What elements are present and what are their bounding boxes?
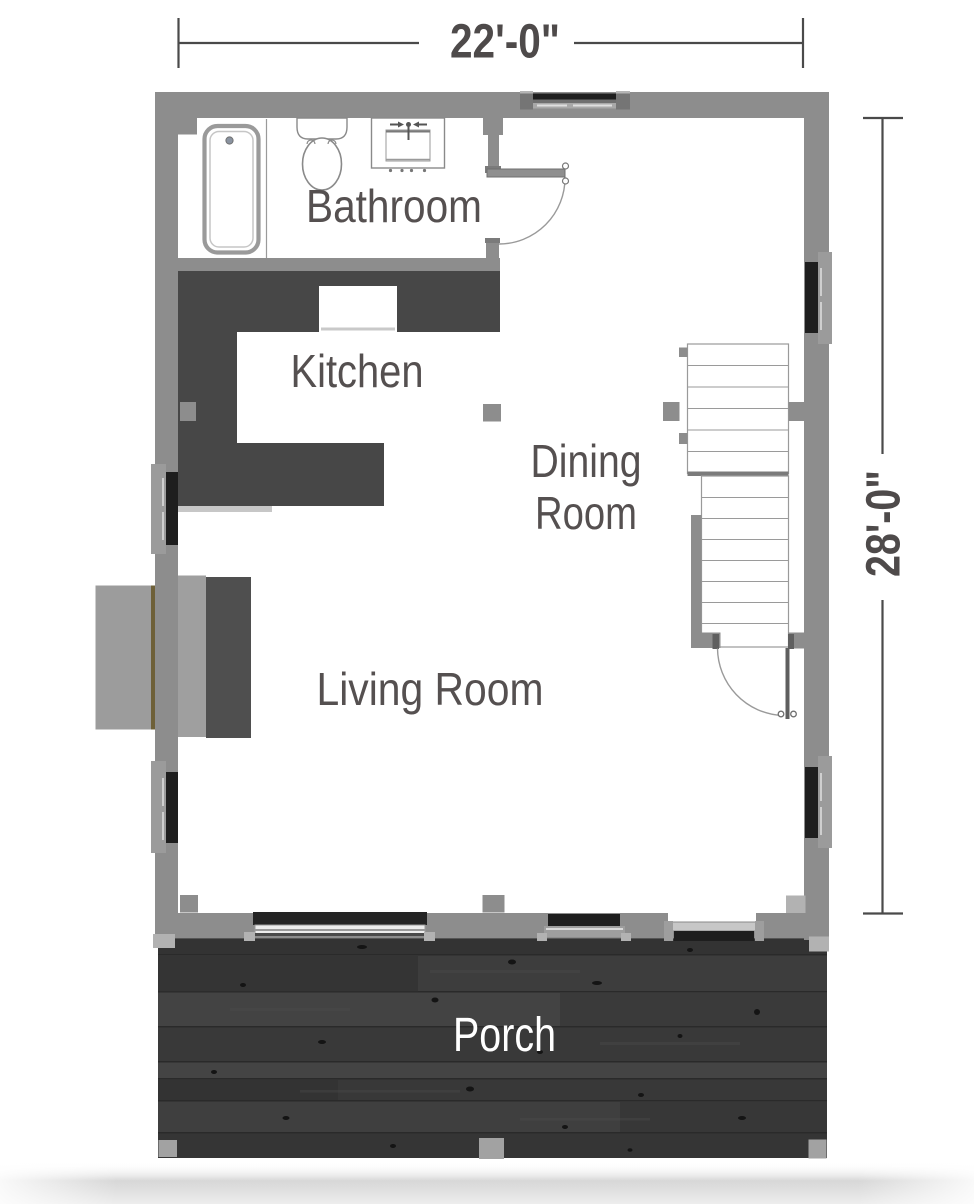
svg-text:Living Room: Living Room [317, 663, 544, 715]
svg-text:Room: Room [535, 487, 637, 539]
svg-text:22'-0": 22'-0" [450, 16, 560, 69]
svg-text:28'-0": 28'-0" [858, 470, 911, 577]
svg-text:Bathroom: Bathroom [306, 180, 482, 232]
svg-text:Kitchen: Kitchen [291, 345, 424, 397]
svg-text:Dining: Dining [531, 435, 642, 487]
svg-text:Porch: Porch [453, 1009, 556, 1062]
